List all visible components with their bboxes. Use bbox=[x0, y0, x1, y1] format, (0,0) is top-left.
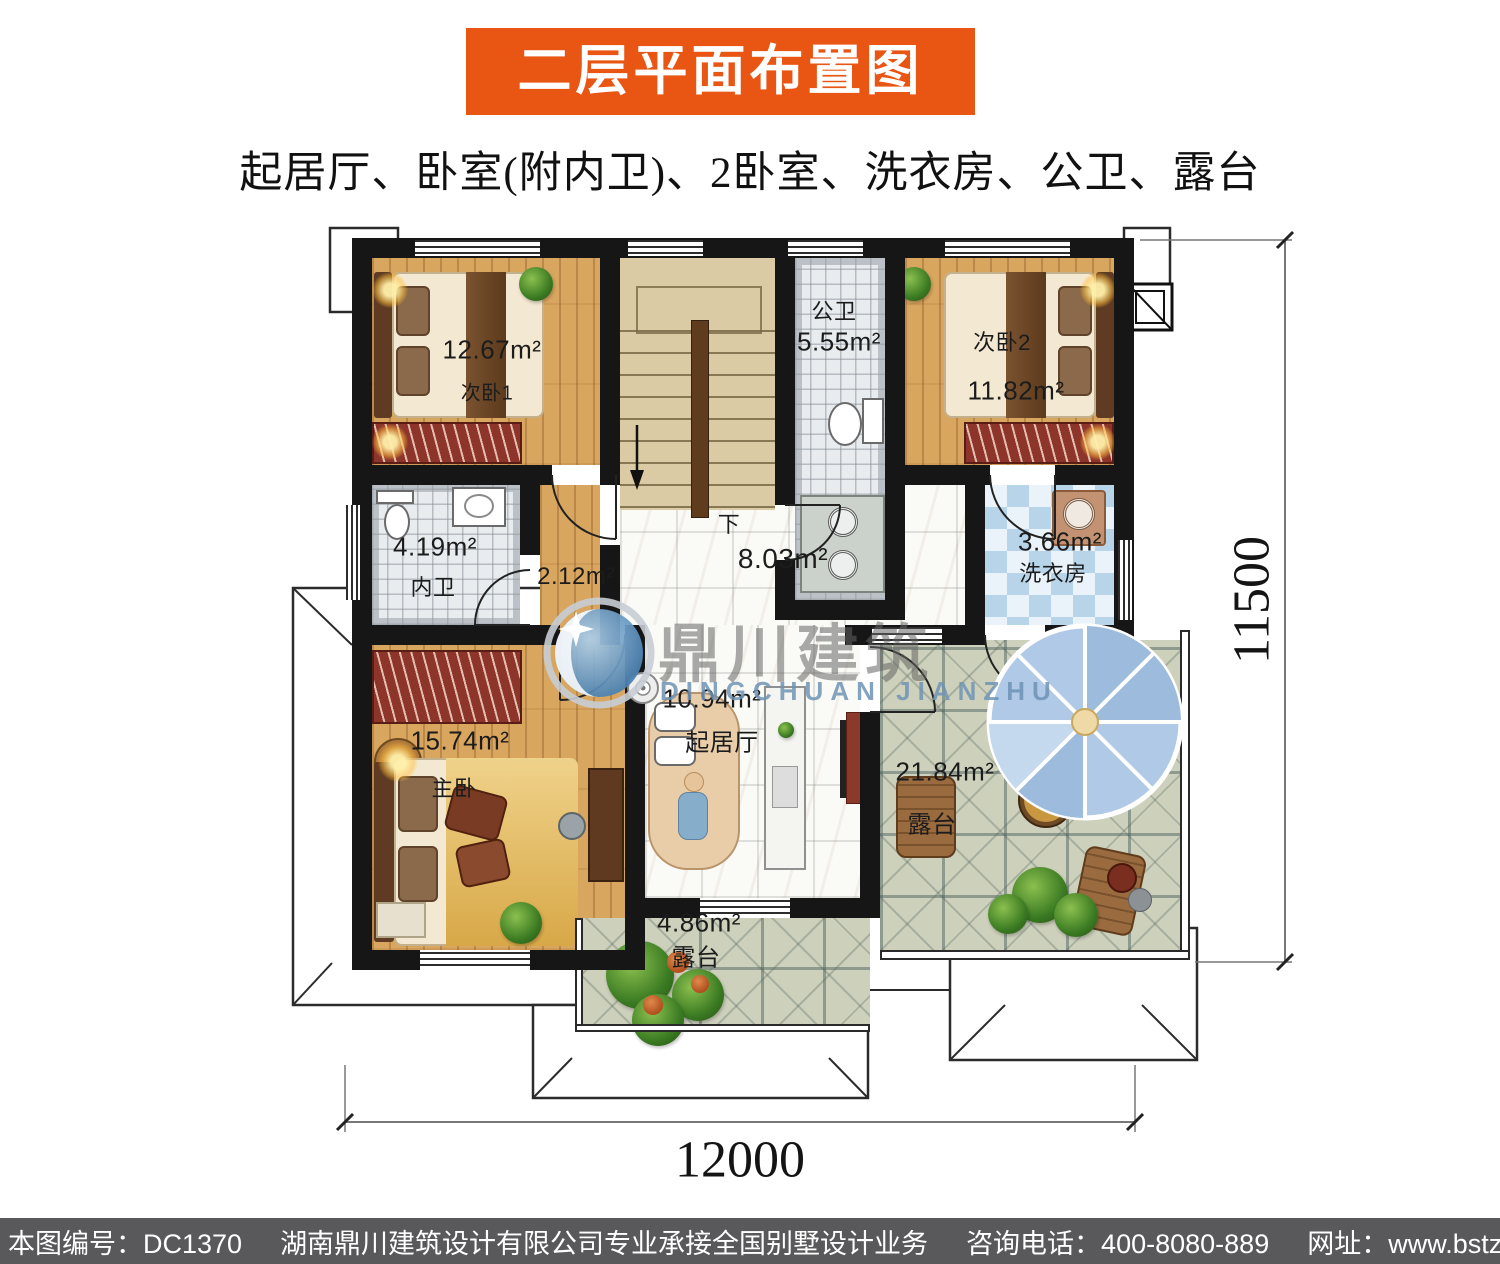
room-name-terrace-front: 露台 bbox=[672, 938, 721, 973]
room-area-terrace-main: 21.84m² bbox=[896, 757, 995, 788]
page-title: 二层平面布置图 bbox=[518, 41, 924, 101]
stair-down-label: 下 bbox=[718, 507, 741, 539]
company-name: 湖南鼎川建筑设计有限公司专业承接全国别墅设计业务 bbox=[280, 1222, 928, 1261]
title-banner: 二层平面布置图 bbox=[466, 28, 975, 115]
dimension-right: 11500 bbox=[1223, 536, 1282, 664]
room-area-public-bath: 5.55m² bbox=[797, 327, 881, 358]
room-area-bedroom1: 12.67m² bbox=[443, 335, 542, 366]
room-area-laundry: 3.66m² bbox=[1018, 527, 1102, 558]
parasol-icon bbox=[989, 626, 1181, 818]
floor-plan-sheet: 12.67m² 次卧1 公卫 5.55m² 次卧2 11.82m² 4.19m²… bbox=[0, 0, 1500, 1264]
room-area-bedroom2: 11.82m² bbox=[968, 376, 1065, 407]
dimension-bottom: 12000 bbox=[675, 1131, 805, 1190]
watermark-english: DINGCHUAN JIANZHU bbox=[660, 676, 1058, 707]
stair-down-arrow bbox=[630, 425, 644, 490]
footer-bar: 本图编号：DC1370 湖南鼎川建筑设计有限公司专业承接全国别墅设计业务 咨询电… bbox=[0, 1218, 1500, 1264]
room-area-master: 15.74m² bbox=[411, 726, 510, 757]
room-name-bedroom1: 次卧1 bbox=[461, 377, 514, 406]
room-name-master: 主卧 bbox=[431, 771, 476, 803]
sheet-number: 本图编号：DC1370 bbox=[8, 1222, 242, 1261]
phone-number: 咨询电话：400-8080-889 bbox=[966, 1222, 1269, 1261]
room-name-public-bath: 公卫 bbox=[811, 294, 856, 326]
plan-subtitle: 起居厅、卧室(附内卫)、2卧室、洗衣房、公卫、露台 bbox=[0, 138, 1500, 200]
room-area-corridor: 2.12m² bbox=[537, 563, 615, 591]
room-name-inner-bath: 内卫 bbox=[410, 570, 455, 602]
room-name-laundry: 洗衣房 bbox=[1019, 556, 1087, 588]
room-area-terrace-front: 4.86m² bbox=[657, 908, 741, 939]
room-area-hall: 8.03m² bbox=[738, 543, 828, 575]
room-area-inner-bath: 4.19m² bbox=[393, 532, 477, 563]
room-name-bedroom2: 次卧2 bbox=[973, 325, 1031, 357]
website: 网址：www.bstzcs.com bbox=[1307, 1222, 1500, 1261]
room-name-terrace-main: 露台 bbox=[908, 805, 957, 840]
dingchuan-logo-icon bbox=[543, 597, 655, 709]
room-name-living: 起居厅 bbox=[685, 723, 759, 758]
